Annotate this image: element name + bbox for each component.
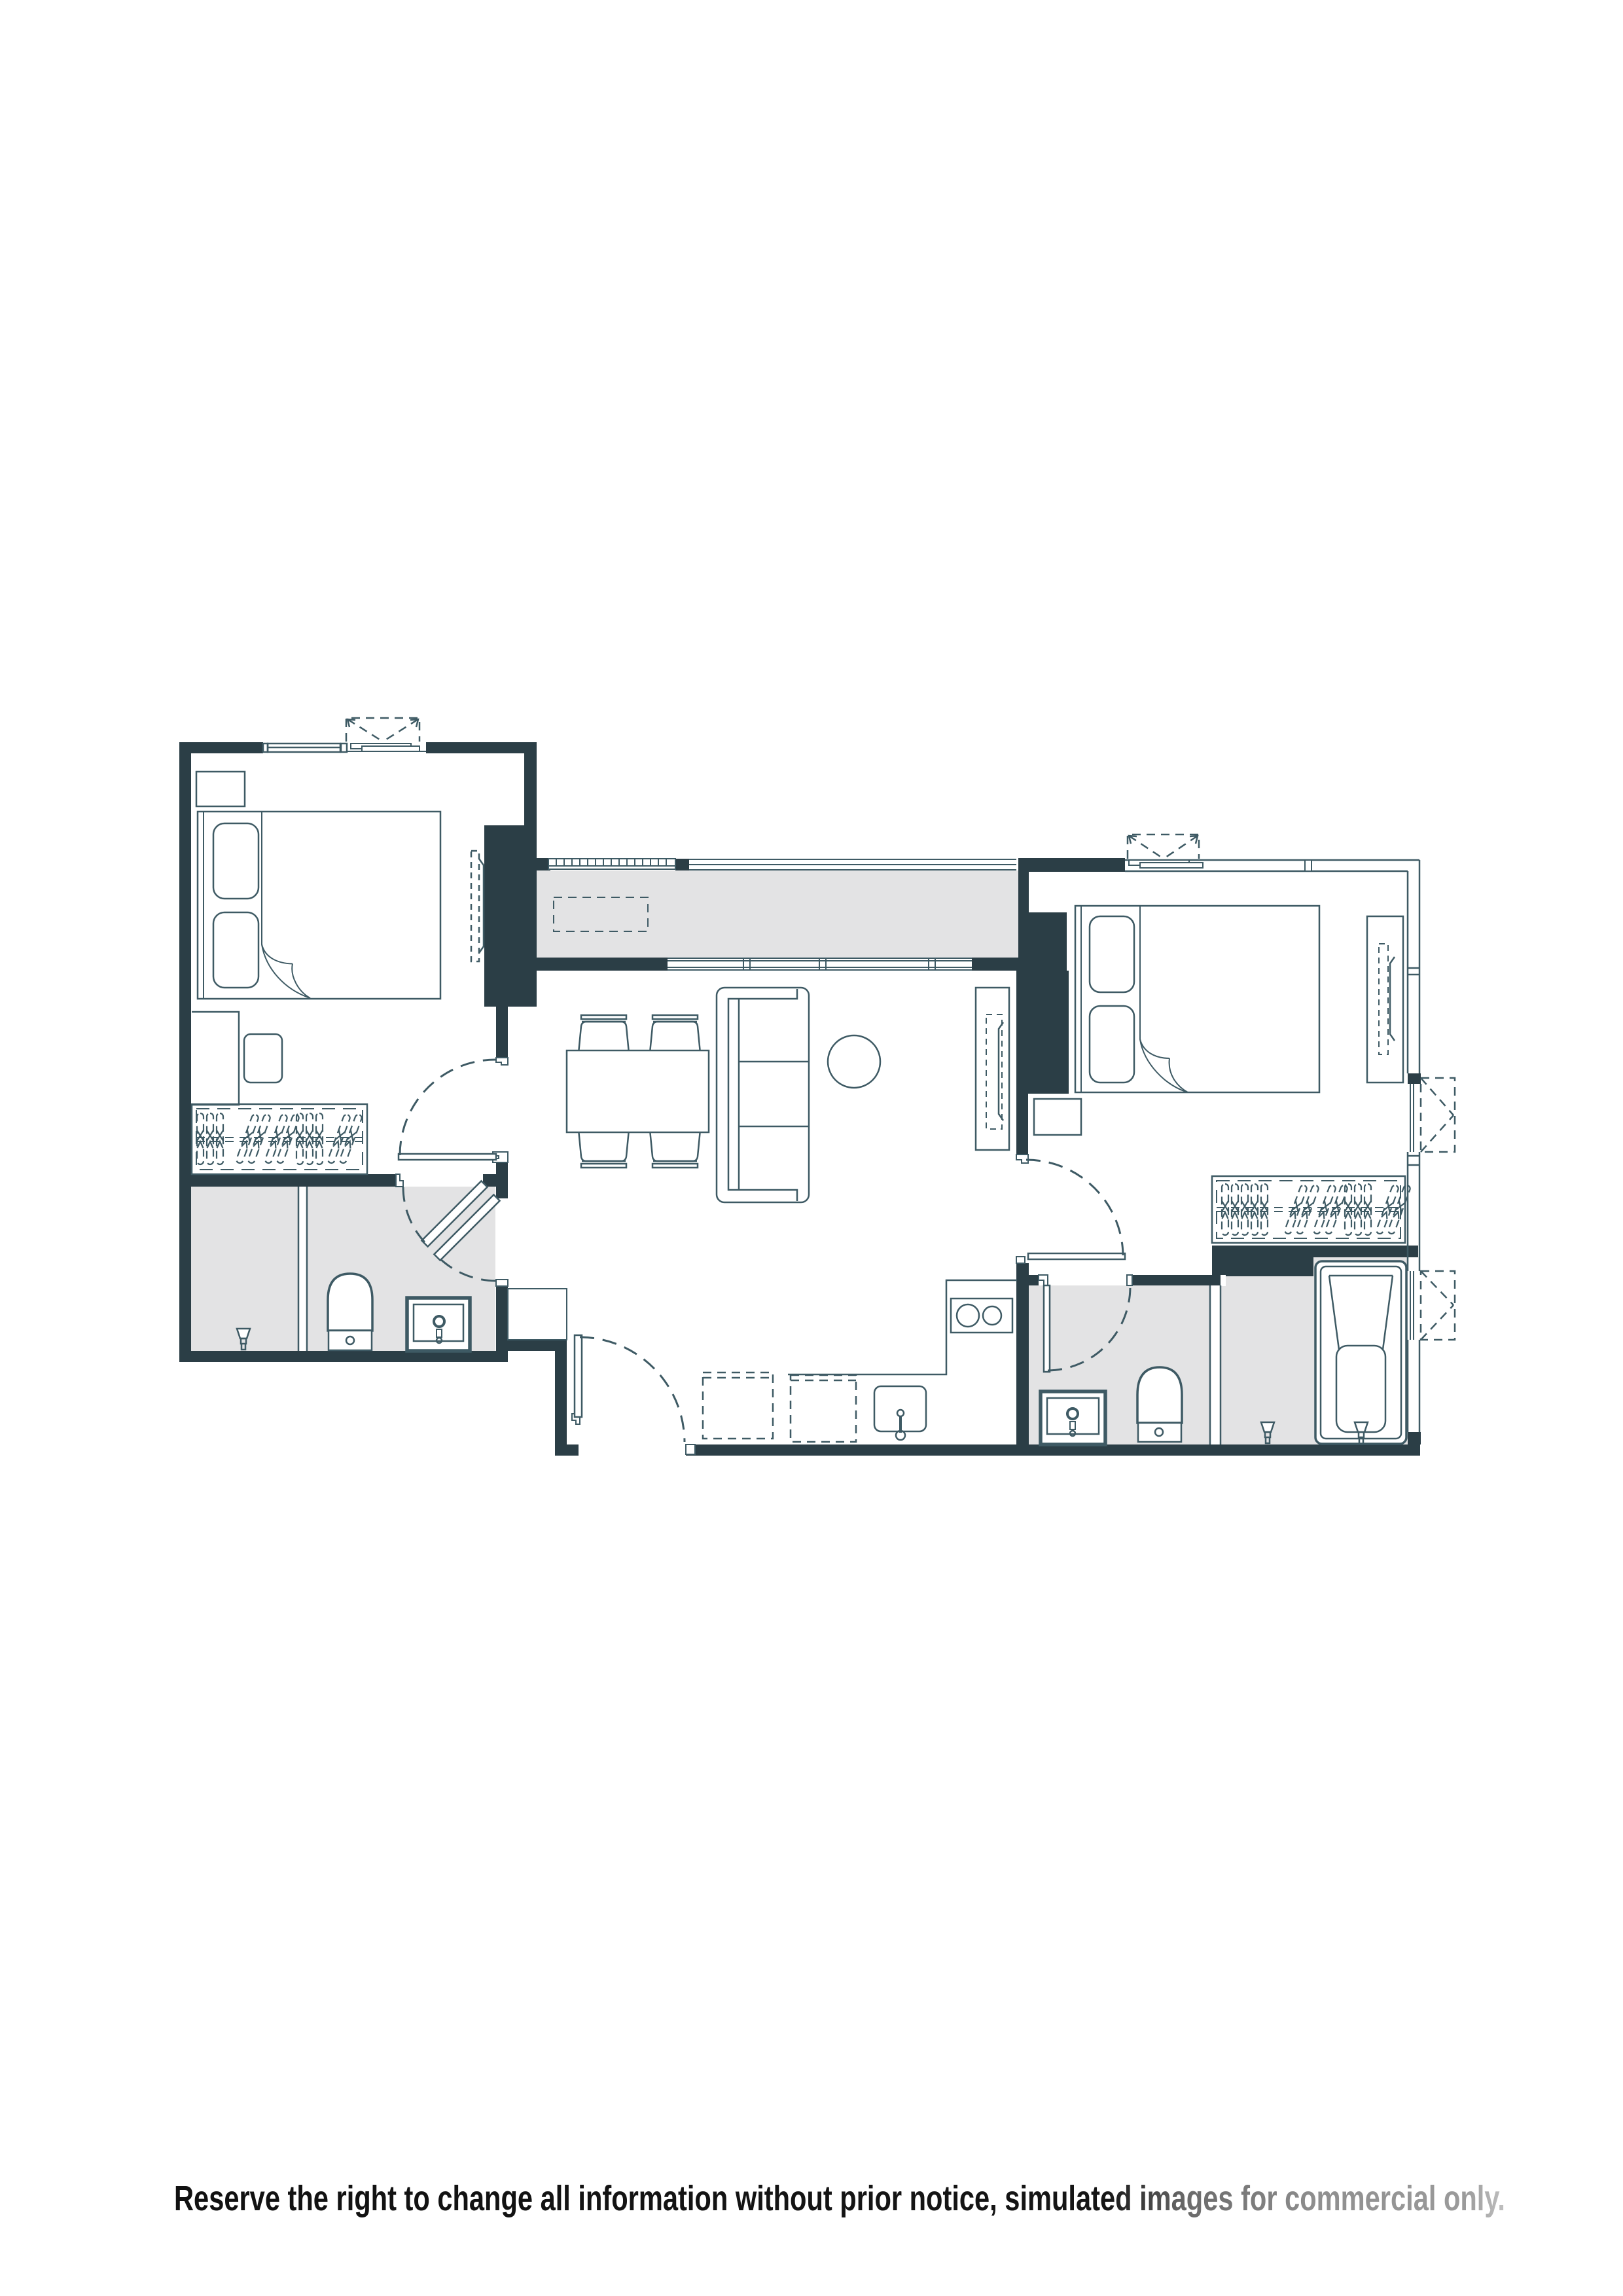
svg-text:Reserve the right to change al: Reserve the right to change all informat… — [174, 2179, 1505, 2218]
